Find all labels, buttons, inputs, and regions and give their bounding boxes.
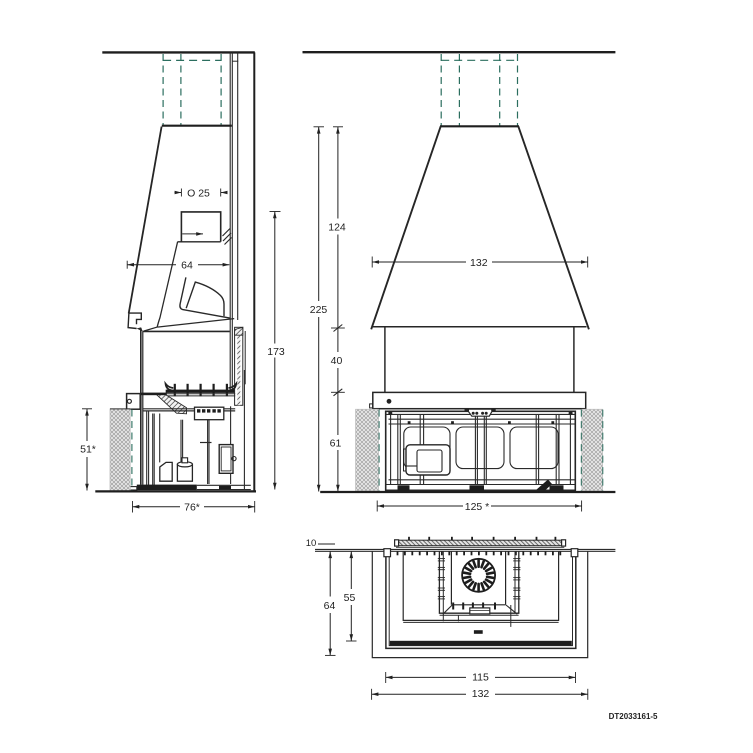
svg-text:76*: 76* [184,502,200,514]
svg-text:O 25: O 25 [187,188,210,200]
svg-text:173: 173 [267,346,285,358]
svg-text:10: 10 [306,538,317,549]
svg-text:225: 225 [310,304,328,316]
svg-text:64: 64 [181,260,193,272]
svg-text:61: 61 [330,437,342,449]
svg-text:115: 115 [472,672,489,684]
svg-text:132: 132 [472,688,490,700]
svg-text:DT2033161-5: DT2033161-5 [609,712,658,721]
svg-text:55: 55 [344,592,356,604]
svg-text:64: 64 [324,600,336,612]
svg-text:132: 132 [470,257,488,269]
svg-text:124: 124 [328,222,346,234]
svg-text:51*: 51* [80,444,96,456]
svg-text:40: 40 [331,355,343,367]
svg-text:125 *: 125 * [465,501,490,513]
